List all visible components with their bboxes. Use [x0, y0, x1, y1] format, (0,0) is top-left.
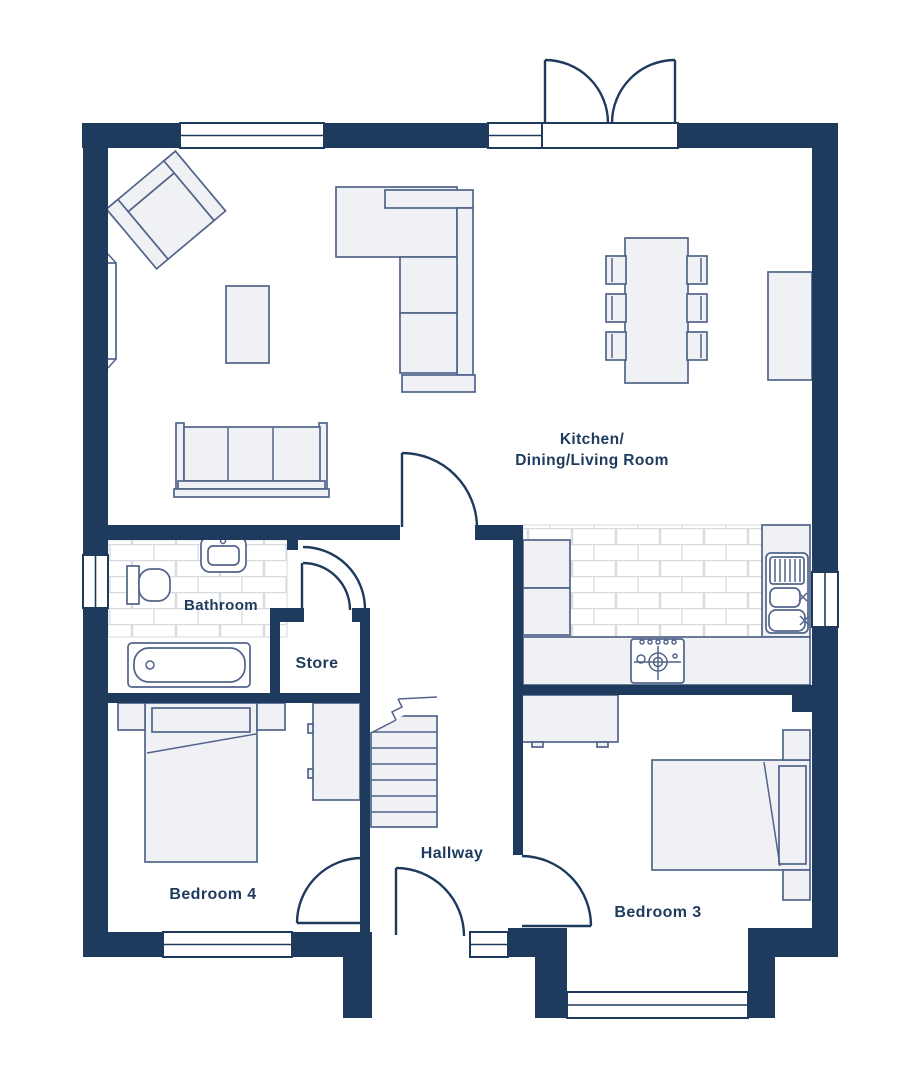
label-store: Store: [296, 655, 339, 672]
label-bedroom3: Bedroom 3: [614, 904, 701, 921]
kitchen-sink: [766, 553, 809, 633]
window-bedroom3-bay: [567, 992, 748, 1018]
window-top-small: [488, 123, 542, 148]
coffee-table: [226, 286, 269, 363]
sideboard: [768, 272, 812, 380]
door-living-room: [402, 453, 477, 528]
label-bedroom4: Bedroom 4: [169, 886, 256, 903]
label-hallway: Hallway: [421, 845, 483, 862]
label-kitchen-line1: Kitchen/: [560, 431, 625, 448]
label-bathroom: Bathroom: [184, 597, 258, 614]
window-kitchen: [812, 572, 838, 627]
door-bedroom4: [297, 858, 362, 923]
door-bedroom3: [522, 856, 591, 926]
bedroom3-bed: [652, 760, 810, 870]
floor-plan: Kitchen/ Dining/Living Room Bathroom Sto…: [0, 0, 920, 1080]
bathtub: [128, 643, 250, 687]
hob: [631, 639, 684, 683]
bedroom3-desk: [522, 695, 618, 747]
toilet: [127, 566, 170, 604]
bedroom4-bed: [145, 703, 257, 862]
armchair: [106, 151, 225, 269]
french-doors: [542, 60, 678, 148]
label-kitchen-line2: Dining/Living Room: [515, 452, 669, 469]
window-front-sidelight: [470, 932, 508, 957]
floor-plan-page: Kitchen/ Dining/Living Room Bathroom Sto…: [0, 0, 920, 1080]
bedroom4-wardrobe: [308, 703, 360, 800]
stairs: [369, 692, 438, 827]
radiator: [107, 254, 116, 368]
corner-sofa: [336, 187, 475, 392]
door-front: [396, 868, 464, 936]
dining-table: [625, 238, 688, 383]
door-bathroom: [302, 547, 365, 610]
window-bathroom: [83, 555, 108, 608]
sofa: [174, 423, 329, 497]
window-top-left: [180, 123, 324, 148]
window-bedroom4: [163, 932, 292, 957]
